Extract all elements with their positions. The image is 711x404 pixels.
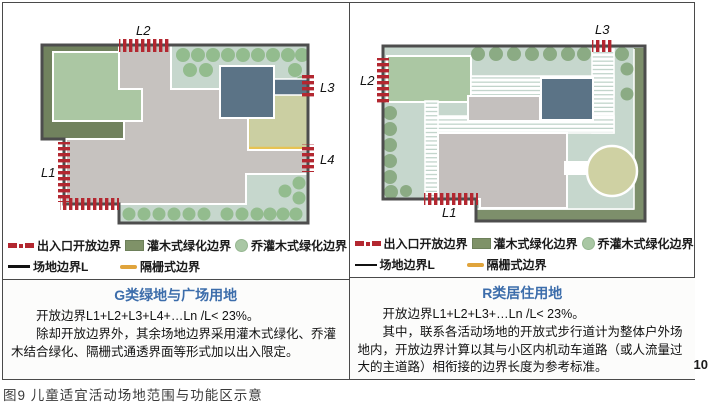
label-L2: L2 bbox=[360, 73, 375, 88]
site-boundary-icon bbox=[355, 264, 377, 267]
panel-r-residential: L2 L3 L1 出入口开放边界 灌木式绿化边界 乔灌木式绿化边界 bbox=[349, 3, 696, 379]
label-L2: L2 bbox=[136, 23, 151, 38]
legend-label-fence: 隔栅式边界 bbox=[487, 256, 547, 273]
site-boundary-icon bbox=[8, 265, 30, 268]
paragraph: 开放边界L1+L2+L3+L4+…Ln /L< 23%。 bbox=[11, 308, 341, 326]
site-plan-g-map: L2 L1 L3 L4 bbox=[3, 3, 349, 233]
page-number: 10 bbox=[694, 357, 708, 372]
legend-label-siteline: 场地边界L bbox=[33, 258, 88, 275]
tree-shrub-boundary-icon bbox=[582, 237, 595, 250]
panel-title-r: R类居住用地 bbox=[358, 283, 688, 303]
label-L3: L3 bbox=[320, 80, 335, 95]
building bbox=[541, 78, 593, 120]
shrub-green-area bbox=[387, 56, 471, 102]
legend-item-treeshrub: 乔灌木式绿化边界 bbox=[235, 237, 347, 254]
paragraph: 其中，联系各活动场地的开放式步行道计为整体户外场地内，开放边界计算以其与小区内机… bbox=[358, 324, 688, 377]
shrub-boundary-icon bbox=[125, 240, 144, 251]
legend-item-siteline: 场地边界L bbox=[355, 256, 463, 273]
label-L1: L1 bbox=[41, 165, 55, 180]
legend-label-treeshrub: 乔灌木式绿化边界 bbox=[251, 237, 347, 254]
legend-item-entrance: 出入口开放边界 bbox=[8, 237, 121, 254]
legend-label-shrub: 灌木式绿化边界 bbox=[147, 237, 231, 254]
panel-title-g: G类绿地与广场用地 bbox=[11, 285, 341, 305]
gate-L4 bbox=[302, 144, 314, 172]
legend-label-entrance: 出入口开放边界 bbox=[37, 237, 121, 254]
gate-L2 bbox=[377, 58, 389, 103]
site-plan-r-map: L2 L3 L1 bbox=[350, 3, 696, 231]
label-L3: L3 bbox=[595, 22, 610, 37]
legend-item-entrance: 出入口开放边界 bbox=[355, 235, 468, 252]
label-L1: L1 bbox=[442, 205, 456, 220]
activity-area-upper bbox=[468, 96, 540, 121]
fence-boundary-icon bbox=[467, 263, 484, 267]
legend-r: 出入口开放边界 灌木式绿化边界 乔灌木式绿化边界 场地边界L bbox=[350, 231, 696, 277]
legend-label-shrub: 灌木式绿化边界 bbox=[494, 235, 578, 252]
sand-circle bbox=[587, 146, 637, 196]
panel-body-g: 开放边界L1+L2+L3+L4+…Ln /L< 23%。 除却开放边界外，其余场… bbox=[11, 308, 341, 361]
tree-shrub-boundary-icon bbox=[235, 239, 248, 252]
text-panel-r: R类居住用地 开放边界L1+L2+L3+…Ln /L< 23%。 其中，联系各活… bbox=[350, 277, 696, 379]
panel-g-greenland: L2 L1 L3 L4 出入口开放边界 灌木式绿化边界 乔灌木式绿化边界 bbox=[3, 3, 349, 379]
green-frame-bottom bbox=[476, 210, 645, 221]
legend-item-shrub: 灌木式绿化边界 bbox=[472, 235, 578, 252]
gate-L3 bbox=[592, 40, 614, 52]
site-plan-r-svg: L2 L3 L1 bbox=[350, 3, 695, 231]
walkway-left-vertical bbox=[425, 101, 438, 199]
fence-boundary-icon bbox=[120, 265, 137, 269]
legend-item-fence: 隔栅式边界 bbox=[467, 256, 547, 273]
legend-g: 出入口开放边界 灌木式绿化边界 乔灌木式绿化边界 场地边界L bbox=[3, 233, 349, 279]
building bbox=[220, 66, 274, 118]
entrance-boundary-icon bbox=[8, 243, 34, 248]
legend-label-siteline: 场地边界L bbox=[380, 256, 435, 273]
legend-item-treeshrub: 乔灌木式绿化边界 bbox=[582, 235, 694, 252]
panel-body-r: 开放边界L1+L2+L3+…Ln /L< 23%。 其中，联系各活动场地的开放式… bbox=[358, 306, 688, 377]
gate-L1-bottom bbox=[60, 198, 119, 210]
text-panel-g: G类绿地与广场用地 开放边界L1+L2+L3+L4+…Ln /L< 23%。 除… bbox=[3, 279, 349, 379]
gate-L1-side bbox=[58, 142, 70, 202]
shrub-boundary-icon bbox=[472, 238, 491, 249]
gate-L2 bbox=[119, 39, 171, 52]
label-L4: L4 bbox=[320, 152, 334, 167]
legend-item-siteline: 场地边界L bbox=[8, 258, 116, 275]
figure-caption: 图9 儿童适宜活动场地范围与功能区示意 bbox=[3, 384, 263, 404]
gate-L3 bbox=[302, 74, 314, 99]
gate-L1 bbox=[424, 193, 478, 205]
legend-item-fence: 隔栅式边界 bbox=[120, 258, 200, 275]
paragraph: 除却开放边界外，其余场地边界采用灌木式绿化、乔灌木结合绿化、隔栅式通透界面等形式… bbox=[11, 326, 341, 362]
entrance-boundary-icon bbox=[355, 241, 381, 246]
site-plan-g-svg: L2 L1 L3 L4 bbox=[3, 3, 348, 233]
green-frame-right bbox=[634, 48, 645, 221]
paragraph: 开放边界L1+L2+L3+…Ln /L< 23%。 bbox=[358, 306, 688, 324]
legend-label-entrance: 出入口开放边界 bbox=[384, 235, 468, 252]
legend-label-treeshrub: 乔灌木式绿化边界 bbox=[598, 235, 694, 252]
legend-label-fence: 隔栅式边界 bbox=[140, 258, 200, 275]
legend-item-shrub: 灌木式绿化边界 bbox=[125, 237, 231, 254]
figure-frame: L2 L1 L3 L4 出入口开放边界 灌木式绿化边界 乔灌木式绿化边界 bbox=[2, 2, 695, 380]
